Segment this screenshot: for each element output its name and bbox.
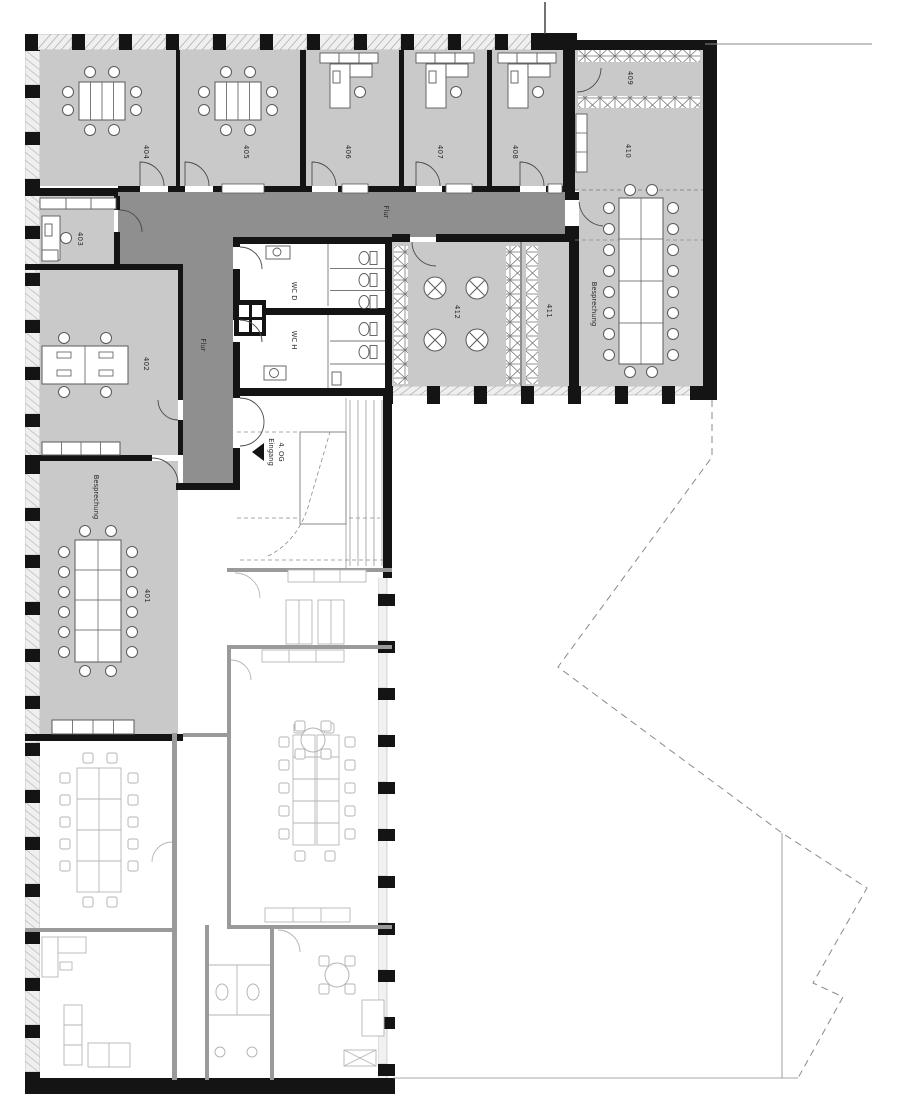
room-label-412: 412 [453,305,461,319]
room-label-besprechung-right: Besprechung [590,282,598,327]
wc-label-men: WC H [290,331,298,350]
room-410-area [575,110,703,190]
room-410-furniture [576,114,587,172]
room-label-406: 406 [344,145,352,160]
wall-corner-se-wing [690,386,717,400]
urinal [332,372,341,385]
wc-label-women: WC D [290,282,298,301]
site-boundary-line [558,400,867,1078]
wall-top-right [563,40,705,50]
room-label-405: 405 [242,145,250,159]
corridor-label-left: Flur [199,339,207,352]
floor-plan-page: 404 405 406 407 408 409 410 Besprechung … [0,0,900,1102]
wc-fixtures [264,244,385,388]
floor-plan-drawing: 404 405 406 407 408 409 410 Besprechung … [0,0,900,1102]
wall-right-wing [703,40,717,400]
room-label-407: 407 [436,145,444,159]
room-label-besprechung-left: Besprechung [92,475,100,520]
room-label-402: 402 [142,357,150,371]
entrance-arrow-icon [252,443,264,461]
shelf-412-right [506,246,520,384]
wall-bottom [25,1078,395,1094]
corridor-label-top: Flur [382,206,390,219]
room-label-404: 404 [142,145,150,160]
room-label-409: 409 [626,71,634,85]
entrance-label: Eingang [267,438,275,466]
stairwell [252,398,382,568]
floor-label: 4. OG [277,442,285,461]
room-label-403: 403 [76,232,84,246]
shelf-409-bottom [578,96,700,108]
room-label-411: 411 [545,304,553,318]
wall-bottom-right-wing [392,386,703,404]
shelf-411 [526,246,538,384]
shelf-409-top [578,50,700,62]
shelf-412-left [394,246,408,384]
wall-left-band [25,50,40,1078]
room-label-410: 410 [624,144,632,158]
room-label-401: 401 [143,589,151,603]
wall-top-band [25,34,540,50]
site-ground-line [393,833,798,1078]
room-label-408: 408 [511,145,519,159]
